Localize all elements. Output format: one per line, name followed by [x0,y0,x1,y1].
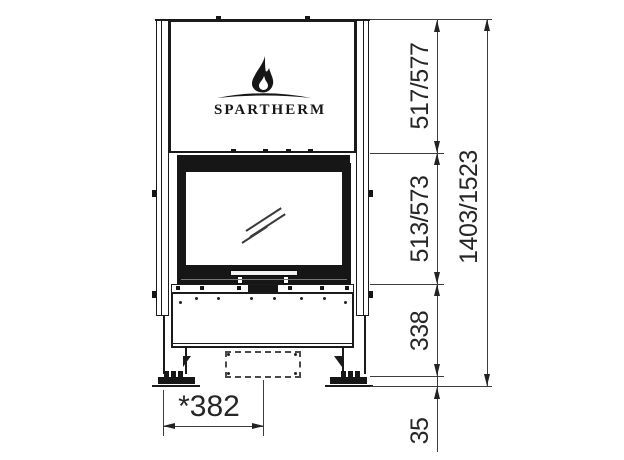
base-panel [171,292,354,348]
arrow-right [252,423,264,429]
left-foot-plate [158,377,195,384]
plinth-bolt [288,286,292,290]
dim-label-duct-offset: *382 [149,394,269,420]
plinth-bolt [176,286,180,290]
arrow-down [484,374,490,386]
rivet-dot [344,301,347,304]
leg-bracket [183,356,191,367]
hood-bottom-tick [231,149,236,153]
arrow-down [434,272,440,284]
post-screw [369,291,373,298]
top-tick [305,16,310,19]
brand-wordmark: SPARTHERM [214,102,314,119]
rivet-dot [273,297,276,300]
arrow-up [434,387,440,399]
arrow-up [484,19,490,31]
rivet-dot [300,297,303,300]
floor-line-right [325,385,373,387]
hood-panel: SPARTHERM [169,20,356,153]
door-frame-groove [181,279,347,280]
duct-fastener [227,353,230,356]
glass-reflection-line [241,226,267,244]
top-tick [216,16,221,19]
arrow-down [434,364,440,376]
left-side-post-inner-line [161,21,162,315]
spartherm-logo: SPARTHERM [214,55,314,119]
left-side-post [156,20,169,316]
arrow-up [434,284,440,296]
arrow-up [434,20,440,32]
duct-fastener [294,353,297,356]
dimension-line-total [487,19,488,386]
logo-swoosh [217,93,311,98]
plinth-bolt [345,286,349,290]
base-bottom-line [173,343,352,344]
dim-label-foot-height: 35 [407,351,433,460]
rivet-dot [250,297,253,300]
technical-drawing: SPARTHERM [0,0,624,460]
duct-fastener [227,372,230,375]
dimension-line-duct [163,426,263,427]
door-glass [186,172,342,265]
arrow-down [434,141,440,153]
flame-icon [214,55,314,99]
door-handle-post [283,276,289,284]
rivet-dot [217,297,220,300]
arrow-up [434,153,440,165]
hood-bottom-tick [308,149,313,153]
door-handle-post [237,276,243,284]
right-foot-plate [330,377,367,384]
post-screw [369,190,373,197]
dim-label-total-height: 1403/1523 [456,127,482,287]
plinth-bolt [320,286,324,290]
floor-line-left [152,385,200,387]
right-side-post-inner-line [363,21,364,315]
air-duct-outline [225,351,301,378]
post-screw [152,291,156,298]
plinth-center-block [248,285,278,292]
frame-top-band [177,155,350,163]
plinth-bolt [237,286,241,290]
hood-bottom-tick [263,149,268,153]
plinth-bolt [200,286,204,290]
rivet-dot [179,301,182,304]
rivet-dot [195,297,198,300]
leg-bracket [334,356,342,367]
rivet-dot [323,297,326,300]
arrow-left [163,423,175,429]
hood-bottom-tick [286,149,291,153]
post-screw [152,190,156,197]
duct-fastener [294,372,297,375]
